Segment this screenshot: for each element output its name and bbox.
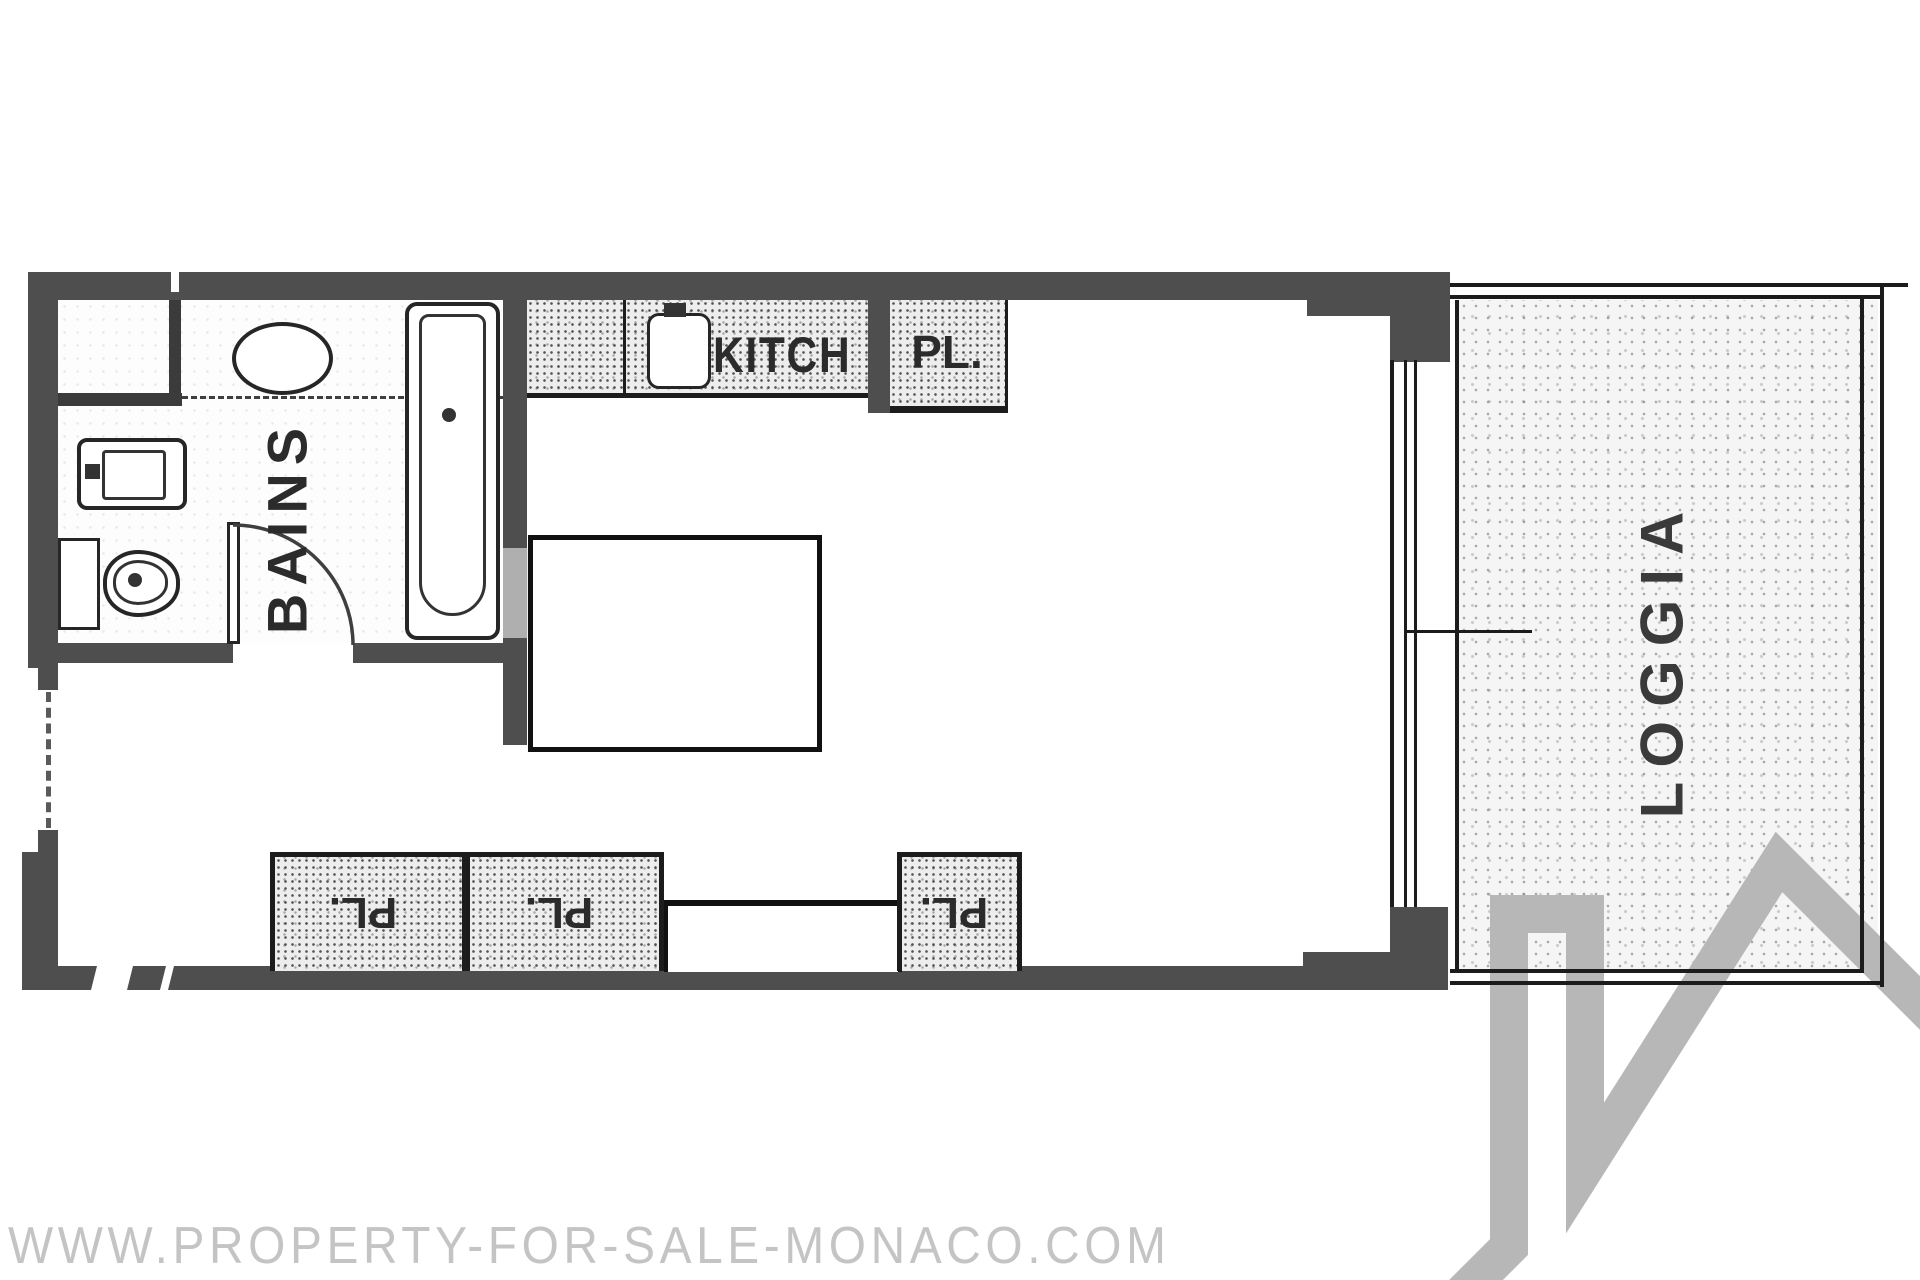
loggia-bottom-line-inner — [1450, 969, 1864, 973]
bathroom-kitchen-wall — [503, 300, 527, 745]
toilet-drain — [128, 573, 142, 587]
oval-basin-icon — [232, 322, 333, 395]
window-pillar-bottom — [1390, 907, 1448, 990]
scan-gap-bottom-wall — [91, 964, 134, 992]
closet-top-label-text: PL. — [911, 325, 983, 379]
scan-slit-top-wall — [171, 272, 179, 292]
closet-top: PL. — [890, 300, 1008, 413]
closet-bottom-mid: PL. — [465, 852, 664, 971]
bathroom-door-leaf — [227, 522, 240, 644]
window-pillar-top — [1390, 316, 1450, 362]
loggia-label-text: LOGGIA — [1628, 498, 1697, 819]
closet-bottom-right-label-text: PL. — [920, 887, 988, 937]
closet-bottom-left-label-text: PL. — [329, 887, 397, 937]
outer-wall-top — [30, 272, 1450, 300]
washbasin-inner — [102, 450, 166, 500]
floorplan-scan: BAINS KITCH PL. PL. PL. PL. — [0, 0, 1920, 1280]
kitchen-sink-icon — [647, 313, 711, 389]
closet-bottom-left: PL. — [270, 852, 467, 971]
loggia-left-line — [1455, 300, 1459, 970]
kitchen-closet-divider-wall — [868, 300, 890, 413]
bathtub-inner — [419, 314, 486, 616]
washbasin-icon — [77, 438, 187, 510]
closet-bottom-mid-label-text: PL. — [525, 887, 593, 937]
bathroom-wall-bottom-left — [58, 643, 233, 663]
window-line-2 — [1404, 360, 1407, 907]
washbasin-tap — [85, 464, 100, 479]
loggia-right-line-outer — [1880, 283, 1884, 987]
loggia-right-line-inner — [1860, 295, 1864, 973]
outer-wall-left-nub-bottom — [38, 830, 58, 854]
kitchen-counter-divider — [623, 300, 626, 397]
bathtub-drain — [442, 408, 456, 422]
outer-wall-left-nub-top — [38, 666, 58, 690]
outer-wall-left-upper — [28, 272, 58, 668]
loggia-top-line-inner — [1450, 295, 1884, 299]
outer-wall-left-dashed-opening — [46, 692, 51, 828]
window-mid-tick — [1406, 630, 1532, 633]
nook-wall-bottom — [58, 393, 182, 406]
watermark-url: WWW.PROPERTY-FOR-SALE-MONACO.COM — [8, 1216, 1171, 1276]
room-furniture-rect — [528, 535, 822, 752]
toilet-bowl-icon — [103, 550, 180, 617]
bathroom-label-text: BAINS — [255, 420, 320, 634]
outer-wall-bottom-step — [1303, 952, 1390, 990]
closet-bottom-right: PL. — [897, 852, 1022, 971]
kitchen-label: KITCH — [713, 326, 851, 384]
bottom-furniture-rect — [664, 900, 902, 972]
loggia-bottom-line-outer — [1450, 981, 1884, 985]
window-line-1 — [1390, 360, 1394, 907]
nook-wall-right — [169, 300, 181, 406]
kitchen-label-text: KITCH — [713, 327, 851, 383]
bathtub-icon — [405, 302, 500, 640]
window-line-3 — [1414, 360, 1417, 907]
toilet-tank — [58, 538, 100, 630]
outer-wall-top-step — [1307, 300, 1450, 316]
loggia-top-line-outer — [1450, 283, 1908, 287]
bathroom-wall-bottom-right — [353, 643, 505, 663]
kitchen-sink-tap — [664, 303, 686, 317]
